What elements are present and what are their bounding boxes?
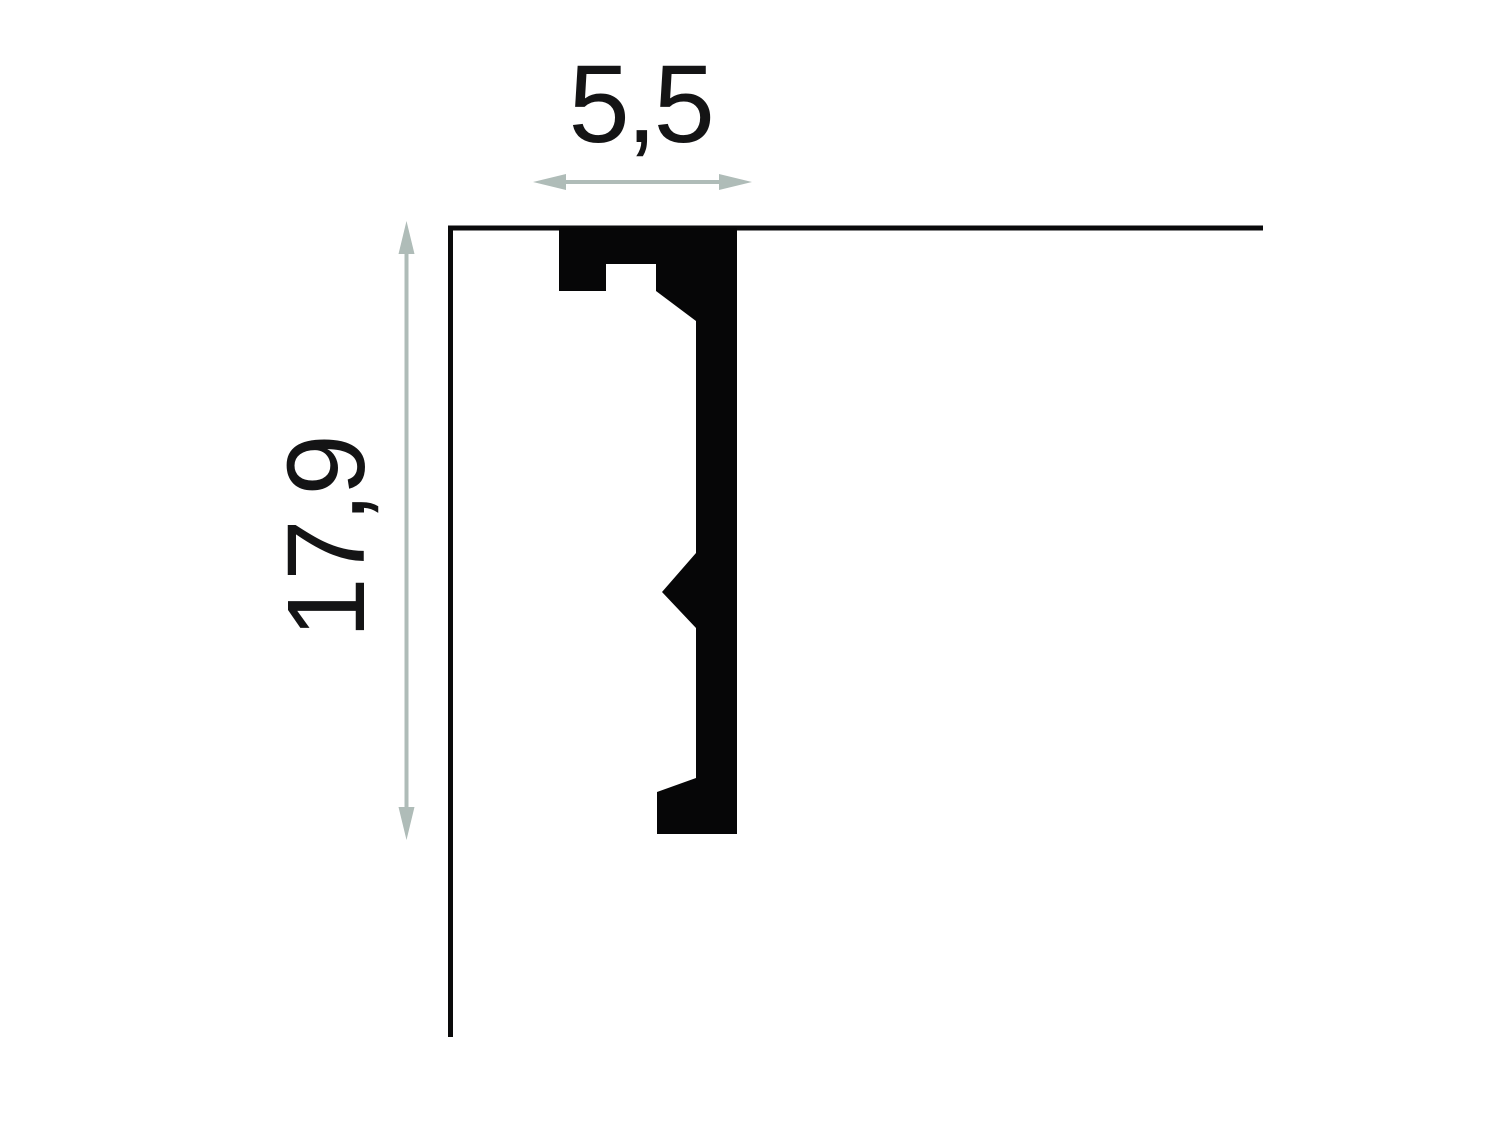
profile-drawing (0, 0, 1504, 1130)
width-dimension-arrow (533, 174, 752, 190)
width-dimension-label: 5,5 (568, 50, 711, 160)
height-dimension-arrow (399, 221, 415, 840)
arrow-left-icon (533, 174, 566, 190)
molding-profile-shape (559, 228, 737, 834)
arrow-up-icon (399, 221, 415, 254)
arrow-down-icon (399, 807, 415, 840)
arrow-right-icon (719, 174, 752, 190)
height-dimension-label: 17,9 (272, 438, 382, 639)
diagram-canvas: 5,5 17,9 (0, 0, 1504, 1130)
